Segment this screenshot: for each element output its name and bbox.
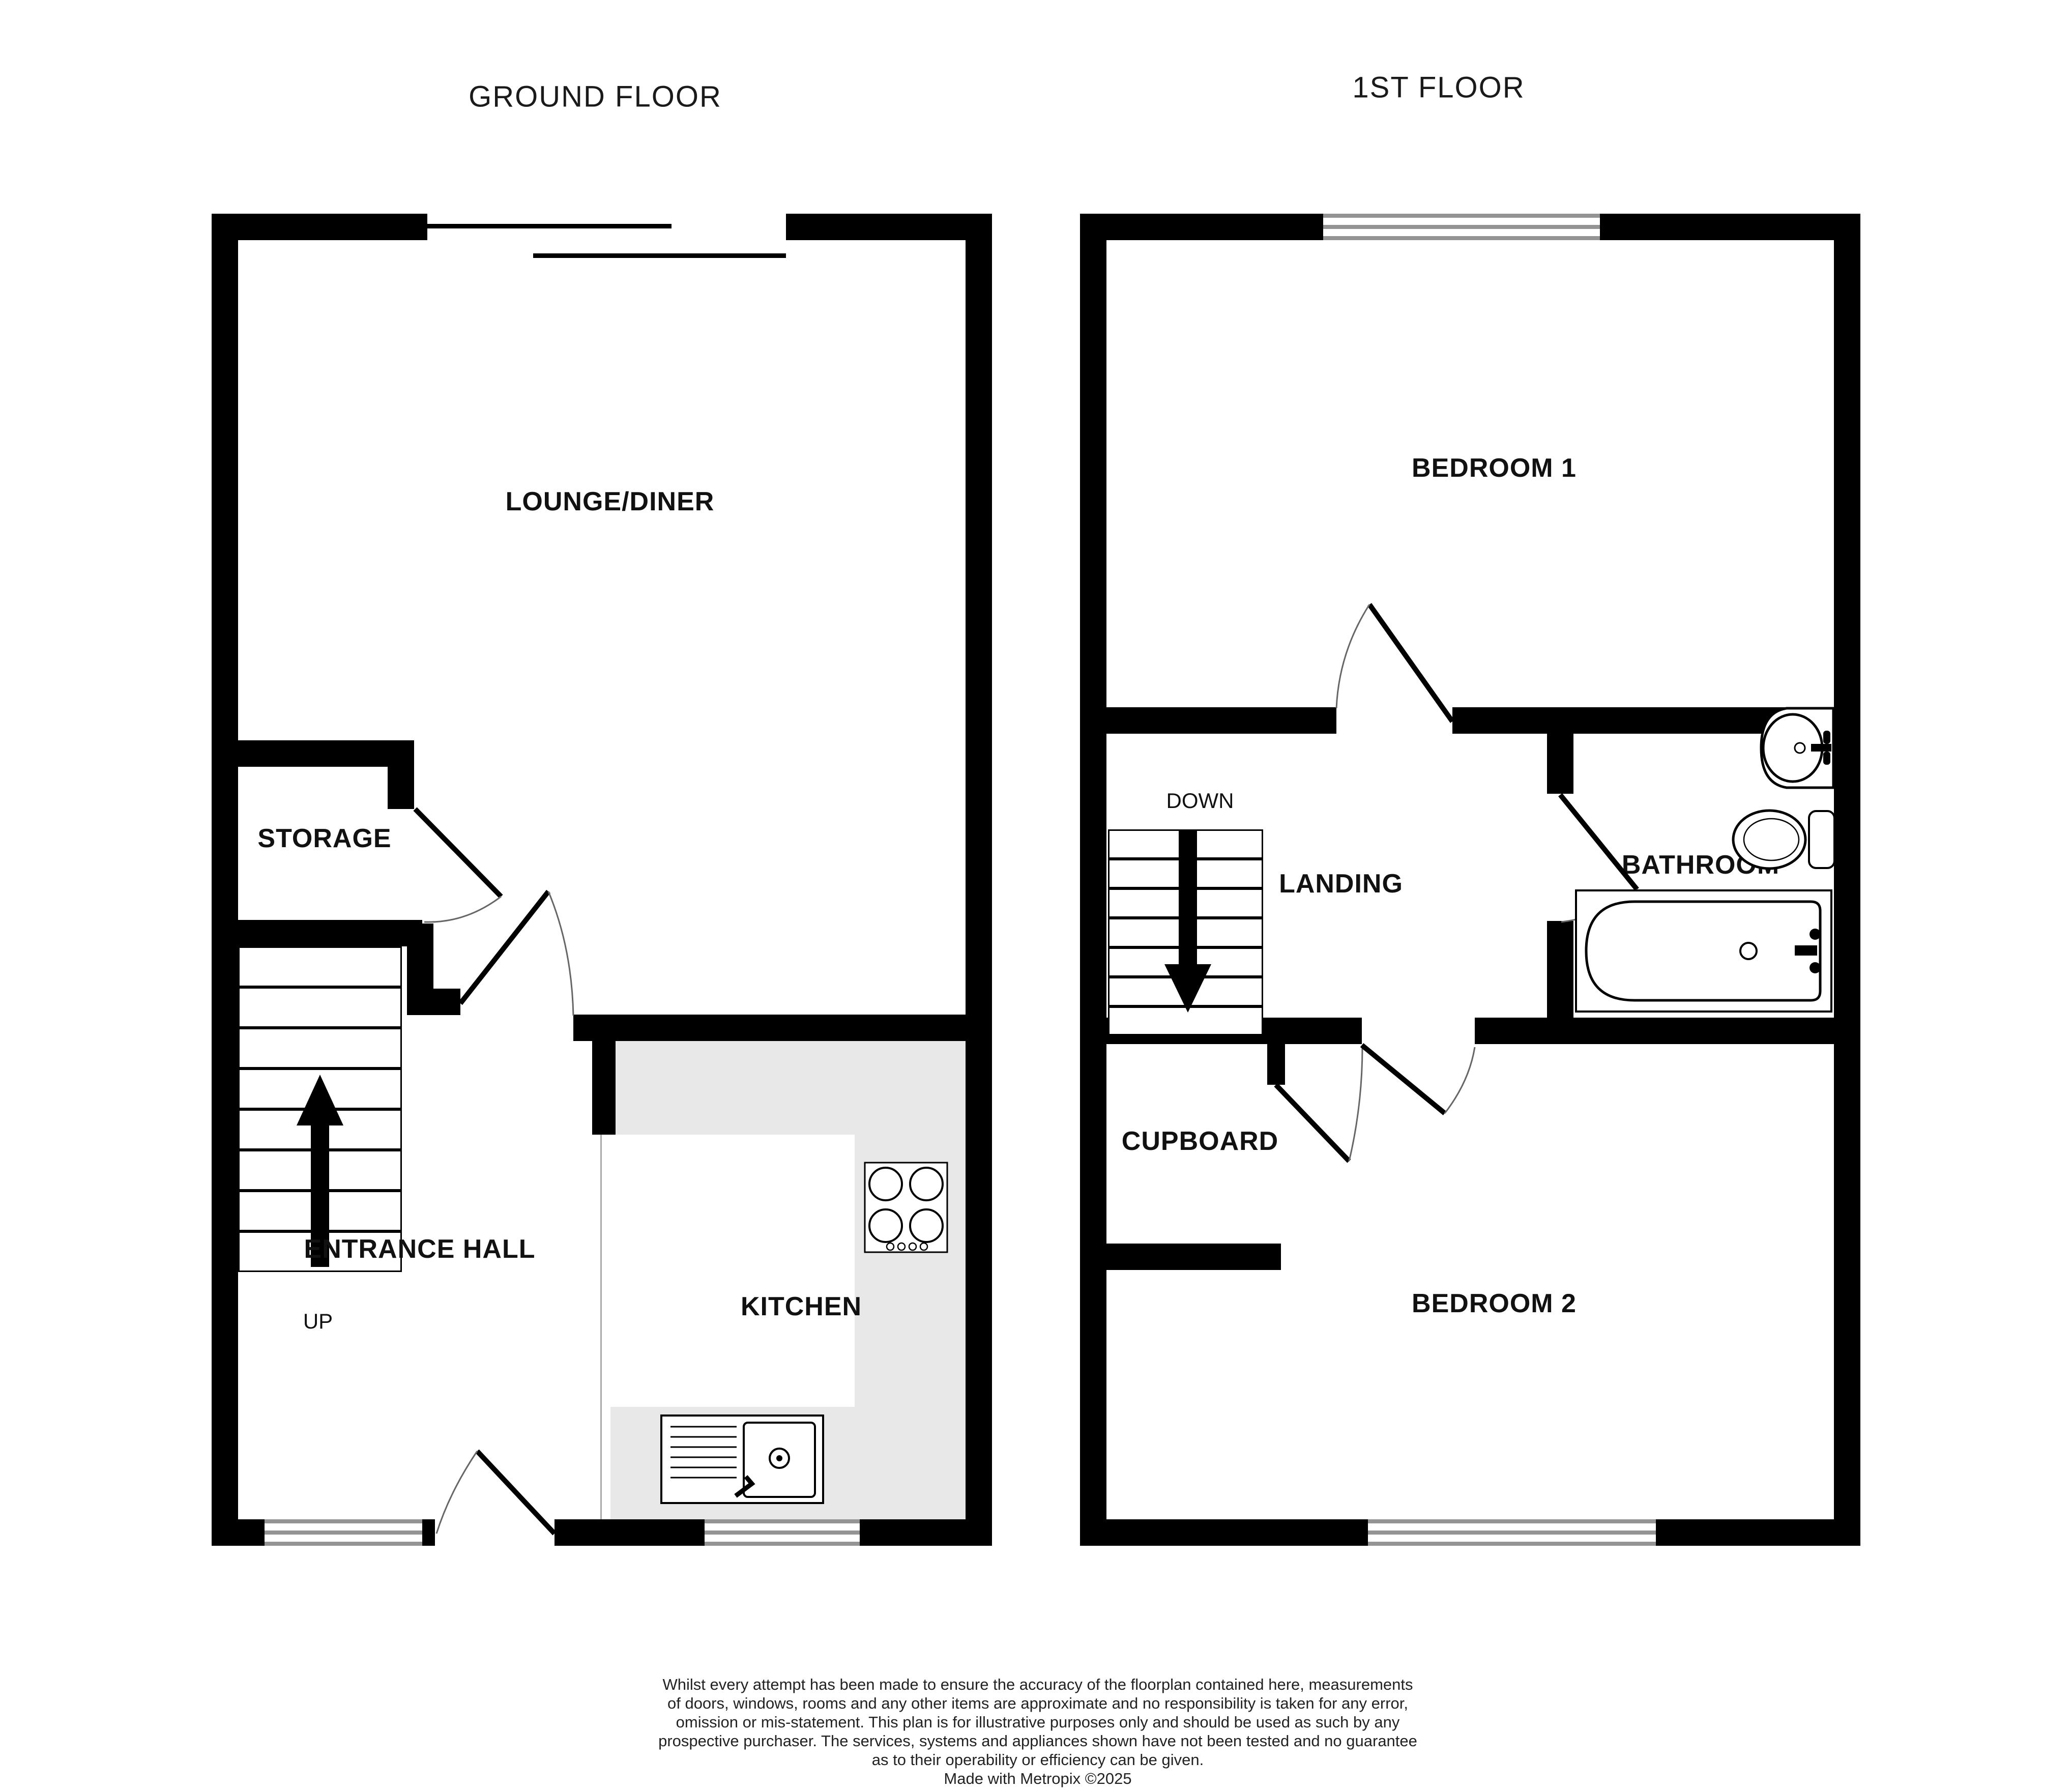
- window-line: [1323, 225, 1600, 229]
- disclaimer-line: omission or mis-statement. This plan is …: [555, 1713, 1521, 1731]
- wall-segment: [966, 214, 992, 1546]
- wall-segment: [1452, 707, 1834, 734]
- down-arrow-head-icon: [1164, 964, 1211, 1013]
- wall-segment: [1106, 707, 1336, 734]
- door-swing-front-entrance: [436, 1451, 555, 1534]
- door-swing-bedroom1: [1336, 604, 1452, 721]
- window-line: [1368, 1531, 1656, 1535]
- room-label-cupboard: CUPBOARD: [1122, 1126, 1278, 1157]
- disclaimer-made-with: Made with Metropix ©2025: [555, 1769, 1521, 1788]
- window: [265, 1519, 422, 1546]
- room-label-bathroom: BATHROOM: [1622, 850, 1779, 880]
- window: [1323, 214, 1600, 240]
- wall-segment: [1547, 734, 1573, 794]
- wall-segment: [555, 1519, 705, 1546]
- wall-segment: [786, 214, 992, 240]
- disclaimer-line: prospective purchaser. The services, sys…: [555, 1731, 1521, 1750]
- wall-segment: [1475, 1018, 1547, 1044]
- wall-segment: [407, 989, 460, 1015]
- window: [1368, 1519, 1656, 1546]
- disclaimer-line: as to their operability or efficiency ca…: [555, 1750, 1521, 1769]
- down-arrow-icon: [1179, 830, 1197, 968]
- room-label-bedroom2: BEDROOM 2: [1412, 1288, 1577, 1319]
- stairs-up-label: UP: [303, 1309, 333, 1334]
- room-label-lounge-diner: LOUNGE/DINER: [506, 486, 715, 517]
- wall-segment: [212, 214, 238, 1546]
- wall-segment: [1080, 214, 1323, 240]
- disclaimer-text: Whilst every attempt has been made to en…: [555, 1675, 1521, 1788]
- door-swing-lounge: [460, 891, 573, 1016]
- wall-segment: [573, 1015, 966, 1041]
- window-line: [705, 1531, 860, 1535]
- room-label-bedroom1: BEDROOM 1: [1412, 453, 1577, 483]
- wall-segment: [1573, 1018, 1834, 1044]
- wall-segment: [388, 740, 414, 809]
- wall-segment: [1600, 214, 1860, 240]
- wall-segment: [212, 1519, 265, 1546]
- room-label-kitchen: KITCHEN: [741, 1291, 862, 1322]
- disclaimer-line: of doors, windows, rooms and any other i…: [555, 1694, 1521, 1713]
- wall-segment: [1080, 1519, 1368, 1546]
- kitchen-floor: [610, 1135, 855, 1407]
- window-line: [265, 1531, 422, 1535]
- room-label-landing: LANDING: [1279, 869, 1403, 899]
- wall-segment: [1834, 214, 1860, 1546]
- wall-segment: [592, 1041, 616, 1135]
- room-label-storage: STORAGE: [257, 823, 391, 854]
- wall-segment: [860, 1519, 992, 1546]
- bath-icon: [1576, 890, 1831, 1012]
- ground-floor-title: GROUND FLOOR: [469, 80, 722, 114]
- room-label-entrance-hall: ENTRANCE HALL: [304, 1234, 536, 1264]
- wall-segment: [1547, 921, 1573, 1044]
- wall-segment: [1106, 1244, 1281, 1270]
- stairs-down-label: DOWN: [1166, 789, 1234, 813]
- door-swing-cupboard: [1276, 1047, 1362, 1161]
- wall-segment: [238, 740, 402, 767]
- sliding-door-line: [533, 253, 786, 258]
- wall-segment: [422, 1519, 435, 1546]
- first-floor-title: 1ST FLOOR: [1352, 71, 1525, 105]
- kitchen-doorway-line: [600, 1135, 602, 1519]
- wall-segment: [1267, 1044, 1285, 1085]
- up-arrow-head-icon: [297, 1075, 343, 1125]
- floorplan-canvas: GROUND FLOOR 1ST FLOOR: [0, 0, 2072, 1790]
- wall-segment: [238, 920, 422, 946]
- wall-segment: [1656, 1519, 1860, 1546]
- wall-segment: [1080, 214, 1106, 1546]
- sliding-door-line: [427, 224, 672, 228]
- disclaimer-line: Whilst every attempt has been made to en…: [555, 1675, 1521, 1694]
- door-swing-bedroom2: [1362, 1045, 1475, 1113]
- door-swing-storage: [415, 809, 501, 922]
- wall-segment: [212, 214, 427, 240]
- window: [705, 1519, 860, 1546]
